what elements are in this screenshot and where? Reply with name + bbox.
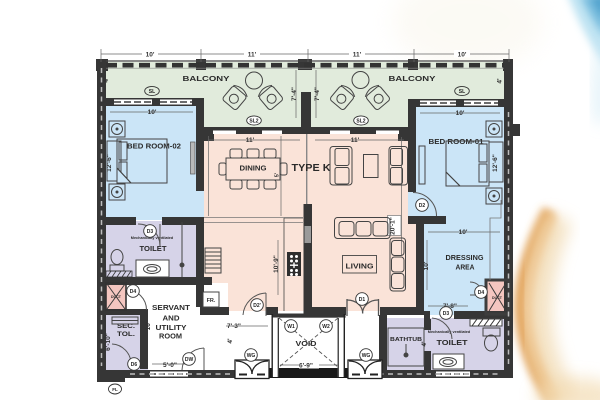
svg-text:BED ROOM-02: BED ROOM-02 (127, 142, 181, 151)
svg-text:6'-9": 6'-9" (299, 363, 313, 370)
svg-text:10': 10' (148, 109, 157, 116)
svg-text:5'-0": 5'-0" (163, 362, 177, 369)
svg-text:D1: D1 (359, 297, 366, 303)
svg-text:BATHTUB: BATHTUB (390, 337, 422, 343)
svg-text:TOILET: TOILET (140, 244, 167, 253)
svg-text:SL2: SL2 (249, 119, 258, 125)
svg-text:WG: WG (362, 353, 371, 359)
svg-text:D4: D4 (478, 290, 485, 296)
svg-text:10'-9": 10'-9" (273, 255, 280, 273)
svg-text:FL: FL (112, 387, 118, 392)
svg-text:11': 11' (351, 137, 360, 144)
svg-text:ROOM: ROOM (159, 334, 182, 341)
svg-text:6'-10": 6'-10" (105, 333, 112, 351)
svg-text:10': 10' (423, 261, 430, 270)
svg-text:11': 11' (248, 52, 257, 59)
svg-text:12'-6": 12'-6" (492, 154, 499, 172)
svg-text:SERVANT: SERVANT (152, 305, 191, 312)
svg-text:4': 4' (227, 338, 234, 344)
svg-text:SL2: SL2 (356, 119, 365, 125)
svg-text:10': 10' (459, 229, 468, 236)
svg-text:D3: D3 (147, 229, 154, 235)
svg-text:10': 10' (456, 110, 465, 117)
svg-text:D2: D2 (419, 203, 426, 209)
svg-text:UTILITY: UTILITY (156, 325, 187, 332)
svg-text:4': 4' (103, 77, 110, 83)
svg-text:BALCONY: BALCONY (183, 74, 230, 83)
svg-text:FR.: FR. (207, 298, 216, 304)
svg-text:SL: SL (149, 89, 155, 95)
svg-text:D4: D4 (130, 289, 137, 295)
svg-text:7'-4": 7'-4" (291, 87, 298, 101)
svg-text:DINING: DINING (240, 164, 267, 173)
svg-text:4': 4' (497, 78, 504, 84)
svg-text:W2: W2 (322, 324, 330, 330)
svg-text:SL: SL (459, 89, 465, 95)
svg-text:11': 11' (246, 137, 255, 144)
svg-text:D6: D6 (131, 362, 138, 368)
svg-text:TYPE K: TYPE K (292, 162, 331, 174)
svg-text:7'-3": 7'-3" (227, 323, 241, 330)
svg-text:20'-1": 20'-1" (390, 217, 397, 235)
svg-text:Mechanically ventilated: Mechanically ventilated (428, 330, 471, 334)
svg-text:TOL.: TOL. (117, 331, 135, 338)
svg-text:DW: DW (185, 357, 194, 363)
svg-text:AND: AND (163, 316, 180, 323)
svg-text:10': 10' (458, 52, 467, 59)
svg-text:LIVING: LIVING (346, 262, 374, 271)
svg-text:WG: WG (247, 353, 256, 359)
svg-text:TOILET: TOILET (437, 338, 468, 347)
svg-text:D2': D2' (253, 303, 261, 309)
svg-text:D3: D3 (443, 311, 450, 317)
svg-text:10': 10' (145, 321, 152, 330)
svg-text:DRESSING: DRESSING (446, 253, 484, 262)
svg-text:W1: W1 (287, 324, 295, 330)
svg-text:10': 10' (146, 52, 155, 59)
svg-text:11': 11' (353, 52, 362, 59)
svg-text:BALCONY: BALCONY (389, 74, 436, 83)
svg-text:AREA: AREA (456, 263, 476, 272)
svg-text:7'-4": 7'-4" (314, 87, 321, 101)
